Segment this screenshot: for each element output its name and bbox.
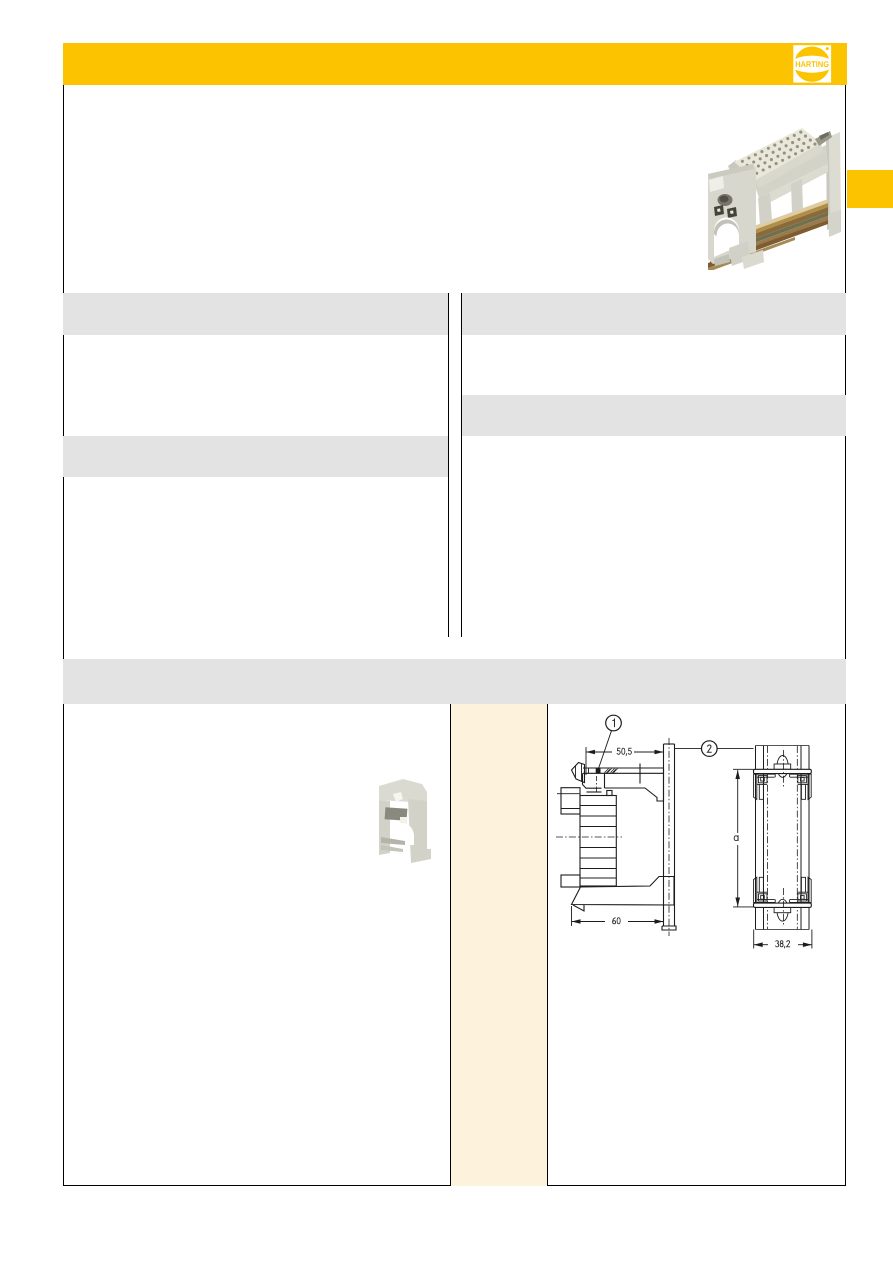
svg-text:HARTING: HARTING: [795, 59, 829, 69]
